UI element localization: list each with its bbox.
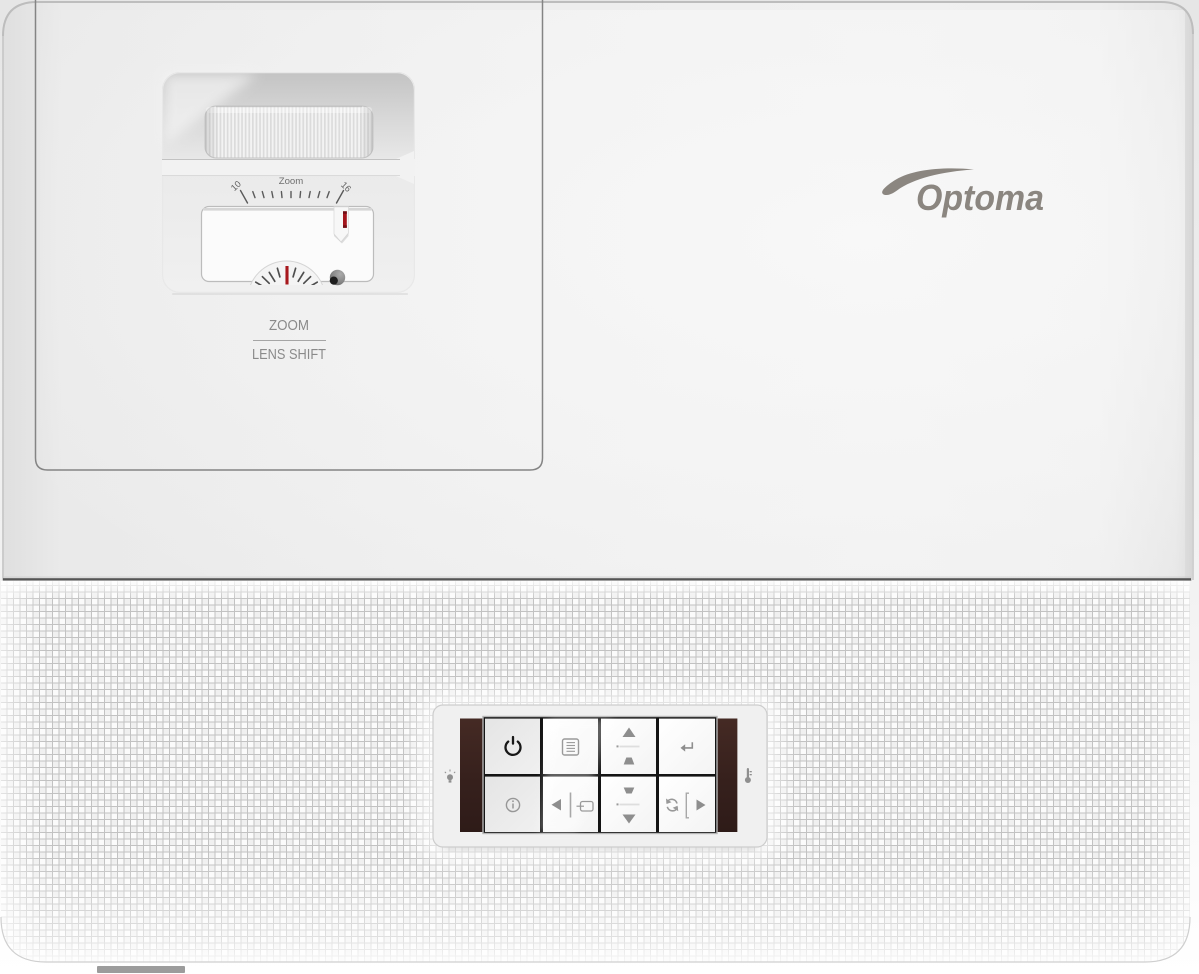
svg-text:Optoma: Optoma <box>916 177 1044 218</box>
svg-text:ZOOM: ZOOM <box>269 317 309 334</box>
svg-text:Zoom: Zoom <box>279 176 304 187</box>
svg-text:LENS SHIFT: LENS SHIFT <box>252 346 326 363</box>
